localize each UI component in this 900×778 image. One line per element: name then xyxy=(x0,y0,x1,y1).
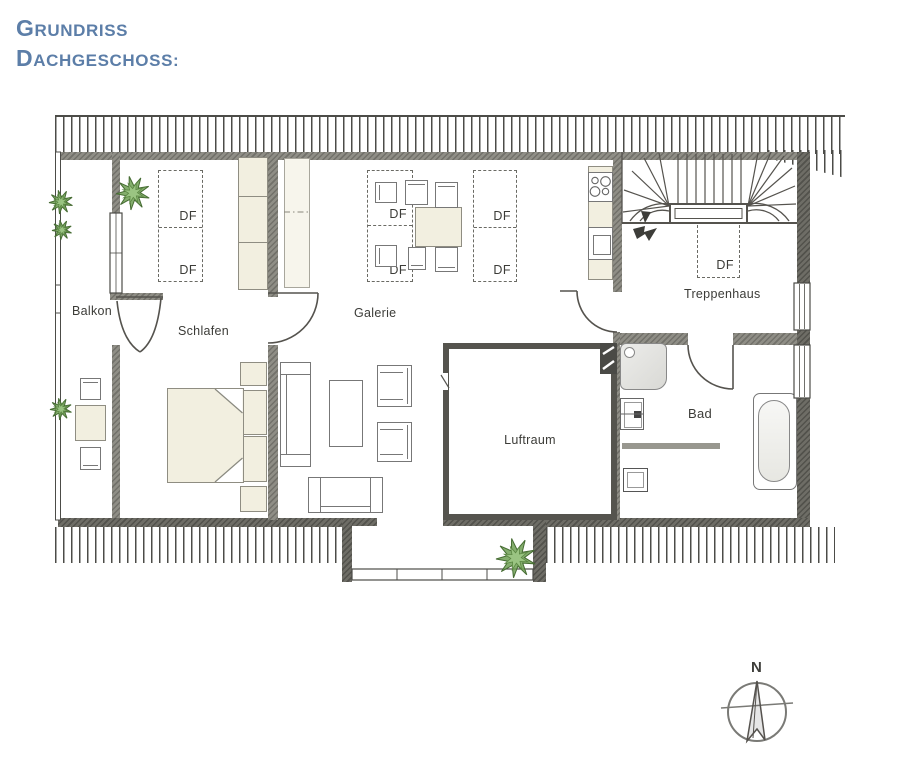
toilet xyxy=(623,468,648,492)
df-window-label: DF xyxy=(389,207,407,221)
knee-wall-strip xyxy=(284,158,310,288)
stair-direction-arrow-icon xyxy=(633,226,657,241)
plant-icon xyxy=(116,176,149,210)
dining-table xyxy=(415,207,462,247)
df-window-treppenhaus: DF xyxy=(697,220,740,278)
balcony-chair xyxy=(80,378,101,400)
wall-balkon-schlafen-lower xyxy=(112,345,120,518)
df-window-label: DF xyxy=(179,263,197,277)
room-label-balkon: Balkon xyxy=(72,304,112,318)
roof-hatch-bottom-left xyxy=(55,527,342,563)
page-title-line2: Dachgeschoss: xyxy=(16,44,179,74)
dining-chair xyxy=(375,182,397,203)
compass-icon xyxy=(721,681,793,741)
roof-hatch-bottom-right xyxy=(546,527,835,563)
sofa-vertical xyxy=(280,362,311,467)
bathtub xyxy=(753,393,797,490)
df-window-label: DF xyxy=(493,209,511,223)
df-window-galerie-2: DF DF xyxy=(473,170,517,282)
dining-chair xyxy=(435,182,458,208)
stove xyxy=(588,172,613,202)
wall-bottom-left xyxy=(58,518,342,527)
df-window-schlafen: DF DF xyxy=(158,170,203,282)
bathroom-sink xyxy=(620,398,644,430)
dormer-wall-left xyxy=(342,518,352,582)
door-galerie-treppenhaus xyxy=(560,291,617,332)
bed-pillow xyxy=(243,390,267,435)
balcony-table xyxy=(75,405,106,441)
luftraum-void xyxy=(443,343,617,520)
bathroom-half-wall xyxy=(622,443,720,449)
wardrobe xyxy=(238,157,268,290)
armchair xyxy=(377,422,412,462)
shower xyxy=(620,343,667,390)
dining-chair xyxy=(405,180,428,205)
door-balkon xyxy=(116,297,163,352)
room-label-schlafen: Schlafen xyxy=(178,324,229,338)
duct-block xyxy=(600,343,617,374)
wall-balkon-schlafen-upper xyxy=(112,152,120,295)
sofa-horizontal xyxy=(308,477,383,513)
balcony-chair xyxy=(80,447,101,470)
dining-chair xyxy=(435,247,458,272)
wall-treppenhaus-bad-right xyxy=(733,333,797,345)
bed-pillow xyxy=(243,436,267,482)
wall-schlafen-galerie-upper xyxy=(268,152,278,297)
room-label-galerie: Galerie xyxy=(354,306,396,320)
nightstand xyxy=(240,362,267,386)
balcony-railing xyxy=(55,152,61,520)
df-window-label: DF xyxy=(716,258,734,272)
wall-top xyxy=(58,152,810,160)
dormer-wall-right xyxy=(533,518,546,582)
page-title-line1: Grundriss xyxy=(16,14,179,44)
plant-icon xyxy=(50,398,72,420)
wall-right xyxy=(797,152,810,523)
dormer-floor xyxy=(352,526,533,582)
dormer-wall-top-a xyxy=(352,518,377,526)
roof-hatch-top xyxy=(55,115,845,154)
page-title: Grundriss Dachgeschoss: xyxy=(16,14,179,74)
df-window-label: DF xyxy=(493,263,511,277)
door-bad xyxy=(688,345,733,389)
balkon-door-header xyxy=(110,293,163,300)
plant-icon xyxy=(49,190,73,214)
room-label-luftraum: Luftraum xyxy=(443,433,617,447)
wall-galerie-treppenhaus xyxy=(613,152,622,292)
armchair xyxy=(377,365,412,407)
floorplan-canvas: Grundriss Dachgeschoss: DF DF xyxy=(0,0,900,778)
dining-chair xyxy=(375,245,397,267)
kitchen-sink xyxy=(588,227,613,260)
wall-schlafen-galerie-lower xyxy=(268,345,278,520)
bed-mattress xyxy=(167,388,244,483)
plant-icon xyxy=(52,220,72,240)
stair-direction-tip xyxy=(641,211,651,223)
door-schlafen xyxy=(268,293,318,343)
compass-north-label: N xyxy=(751,659,762,676)
coffee-table xyxy=(329,380,363,447)
dining-chair xyxy=(408,247,426,270)
room-label-treppenhaus: Treppenhaus xyxy=(684,287,761,301)
nightstand xyxy=(240,486,267,512)
df-window-label: DF xyxy=(179,209,197,223)
room-label-bad: Bad xyxy=(688,406,712,421)
